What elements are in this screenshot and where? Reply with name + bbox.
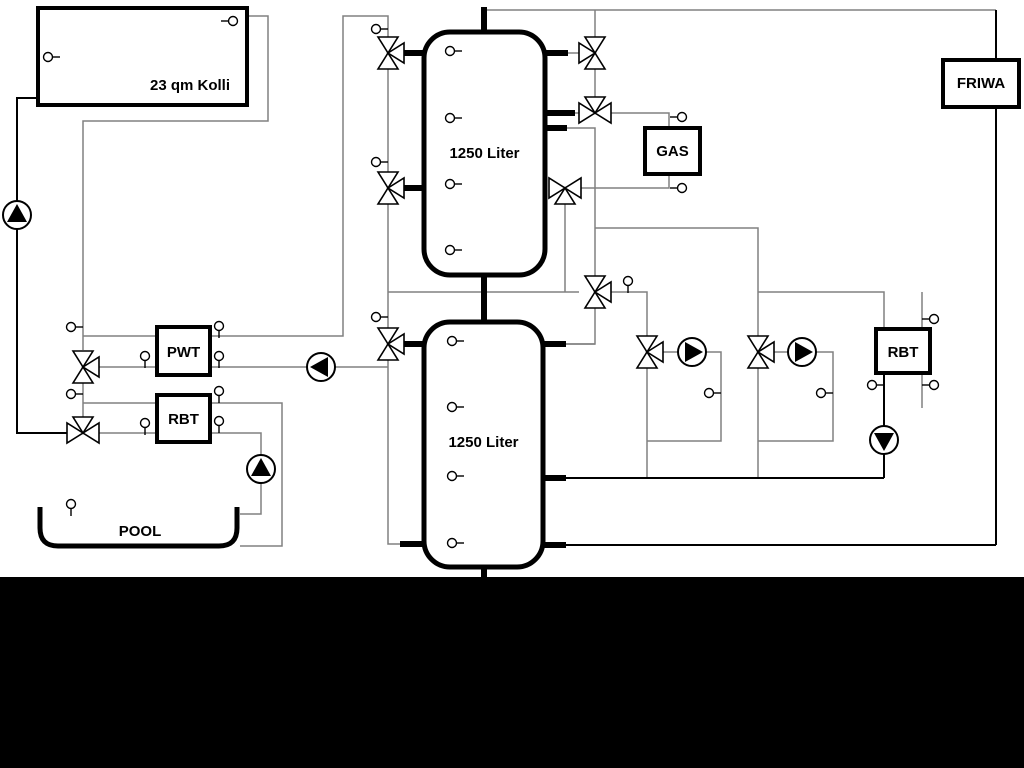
sensor-rbt2-sec-bottom xyxy=(922,381,939,390)
sensor-rbt2-sec-top xyxy=(922,315,939,324)
rbt-left-label: RBT xyxy=(157,410,210,429)
pipe-rbt2-feed xyxy=(758,292,884,329)
gas-label: GAS xyxy=(645,142,700,161)
pipe-gas-return xyxy=(581,174,669,188)
sensor-solar-col-3 xyxy=(372,313,389,322)
sensor-circuit1-return xyxy=(705,389,722,398)
sensor-solar-col-1 xyxy=(372,25,389,34)
pipe-circuit1-feed xyxy=(611,292,647,336)
pipe-mainvalve-to-tank2 xyxy=(540,308,595,344)
pipe-collector-supply xyxy=(17,98,38,201)
sensor-rbt-right-bottom xyxy=(215,417,224,434)
sensor-pwt-riser-bottom xyxy=(67,390,84,399)
pump-pool xyxy=(247,455,275,483)
pwt-label: PWT xyxy=(157,343,210,362)
sensor-rbt2-return xyxy=(868,381,885,390)
pool-label: POOL xyxy=(70,522,210,541)
valve-solar-tank2 xyxy=(378,328,404,360)
pipe-rbt-to-pool-pump xyxy=(210,433,261,455)
valve-solar-tank1-mid xyxy=(378,172,404,204)
valve-solar-tank1-top xyxy=(378,37,404,69)
tank-upper-label: 1250 Liter xyxy=(424,144,545,163)
schematic-page: 23 qm Kolli 1250 Liter 1250 Liter GAS FR… xyxy=(0,0,1024,768)
sensor-pool xyxy=(67,500,76,517)
sensor-solar-col-2 xyxy=(372,158,389,167)
pump-rbt-right xyxy=(870,426,898,454)
sensor-heating-header xyxy=(624,277,633,294)
valve-heating-main xyxy=(585,276,611,308)
pipe-gas-supply xyxy=(611,113,669,128)
valve-gas-supply xyxy=(579,97,611,123)
sensor-pwt-left xyxy=(141,352,150,369)
friwa-label: FRIWA xyxy=(943,74,1019,93)
pump-solar xyxy=(3,201,31,229)
valve-tank1-top-right xyxy=(579,37,605,69)
valve-pool-return xyxy=(67,417,99,443)
pump-pwt xyxy=(307,353,335,381)
sensor-pwt-riser-top xyxy=(67,323,84,332)
valve-gas-return xyxy=(549,178,581,204)
collector-label: 23 qm Kolli xyxy=(130,76,250,95)
sensor-gas-supply xyxy=(670,113,687,122)
sensor-pwt-right-bottom xyxy=(215,352,224,369)
sensor-gas-return xyxy=(670,184,687,193)
sensor-rbt-right-top xyxy=(215,387,224,404)
pump-circuit1 xyxy=(678,338,706,366)
footer-band xyxy=(0,577,1024,768)
valve-circuit2 xyxy=(748,336,774,368)
pump-circuit2 xyxy=(788,338,816,366)
sensor-circuit2-return xyxy=(817,389,834,398)
pipe-cross-header xyxy=(595,228,758,336)
rbt-right-label: RBT xyxy=(876,343,930,362)
tank-lower-label: 1250 Liter xyxy=(424,433,543,452)
pipe-pool-pump-in xyxy=(240,483,261,514)
pipe-solar-left-down xyxy=(17,229,67,433)
valve-pwt-supply xyxy=(73,351,99,383)
valve-circuit1 xyxy=(637,336,663,368)
